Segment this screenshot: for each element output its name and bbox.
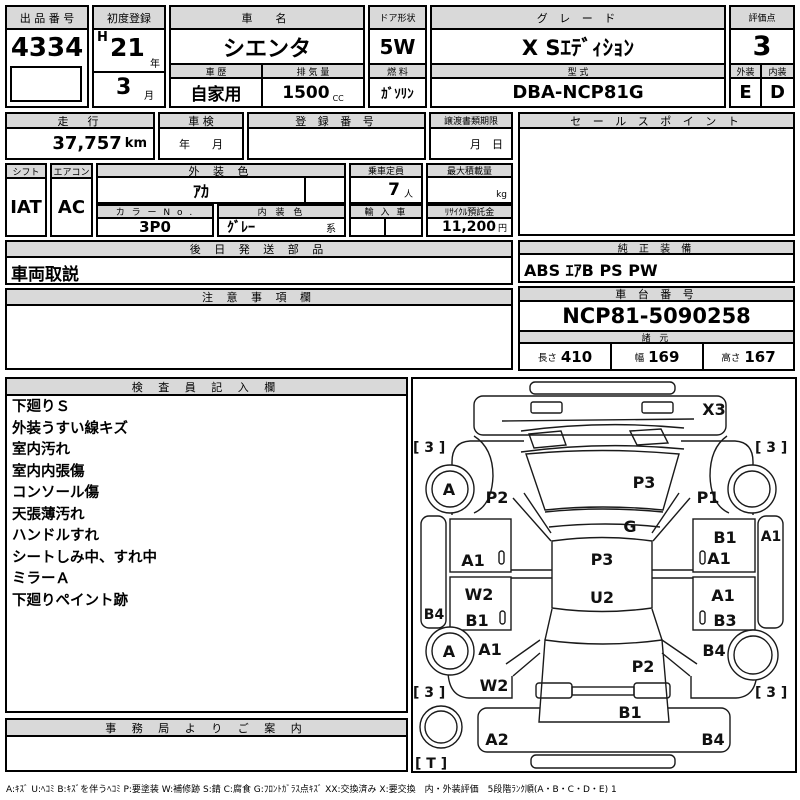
shaken-box: 車 検 年 月 [158,112,244,160]
inspector-line: シートしみ中、すれ中 [12,548,401,570]
car-name-label: 車 名 [171,7,363,30]
sales-point-label: セ ー ル ス ポ イ ン ト [520,114,793,129]
ext-color-box: 外 装 色 ｱｶ [96,163,346,204]
capacity-unit: 人 [404,187,413,202]
grade-label: グ レ ー ド [432,7,724,30]
oem-value: ABS ｴｱB PS PW [520,255,793,283]
mileage-unit: km [125,136,147,151]
tire-depth-rear-right: [ 3 ] [755,685,787,701]
import-cell-1 [351,219,386,235]
model-label: 型 式 [432,65,724,79]
int-color-box: 内 装 色 ｸﾞﾚｰ 系 [217,204,346,237]
color-no-box: カ ラ ー N o . 3P0 [96,204,214,237]
mileage-value: 37,757 km [7,129,153,158]
wheel-front-right-icon [728,465,776,513]
spare-tire-label: [ T ] [415,756,447,771]
damage-label-roof: P3 [591,550,614,569]
damage-label-windshield: P3 [633,473,656,492]
chassis-label: 車 台 番 号 [520,288,793,302]
damage-label-glass: G [623,517,636,536]
score-value: 3 [731,30,793,65]
dims-label: 諸 元 [520,332,793,344]
damage-label-right-sill: A1 [761,529,782,545]
max-load-label: 最大積載量 [428,165,511,178]
first-reg-year: 21 [110,33,145,62]
damage-label-right-quarter: B4 [702,641,725,660]
tire-depth-front-right: [ 3 ] [755,440,787,456]
auction-no-value: 4334 [7,30,87,66]
caution-box: 注 意 事 項 欄 [5,288,513,370]
later-parts-value: 車両取説 [7,258,511,287]
oem-box: 純 正 装 備 ABS ｴｱB PS PW [518,240,795,283]
int-color-value: ｸﾞﾚｰ 系 [219,219,344,235]
auction-no-empty-cell [10,66,82,102]
damage-label-front-right-fender: P1 [697,488,720,507]
car-name-box: 車 名 シエンタ 車 歴 自家用 排 気 量 1500 CC [169,5,365,108]
inspector-line: 下廻りペイント跡 [12,591,401,613]
damage-label-front-left-fender: P2 [486,488,509,507]
car-outline [420,382,783,768]
deadline-box: 譲渡書類期限 月 日 [429,112,513,160]
damage-label-right-rear-door-2: B3 [713,611,736,630]
displacement-value: 1500 CC [263,79,363,106]
damage-label-wheel-front-left: A [443,480,456,499]
score-box: 評価点 3 外装 E 内装 D [729,5,795,108]
auction-sheet: 出 品 番 号 4334 初度登録 H 21 年 3 月 車 名 シエンタ 車 … [0,0,800,800]
interior-grade: D [762,79,793,106]
deadline-label: 譲渡書類期限 [431,114,511,129]
door-value: 5W [370,30,425,65]
aircon-label: エアコン [52,165,91,179]
ext-color-value: ｱｶ [98,178,306,202]
sales-point-box: セ ー ル ス ポ イ ン ト [518,112,795,236]
later-parts-box: 後 日 発 送 部 品 車両取説 [5,240,513,285]
fuel-label: 燃 料 [370,65,425,79]
first-reg-month: 3 [116,75,131,100]
aircon-value: AC [52,179,91,235]
max-load-box: 最大積載量 kg [426,163,513,204]
front-top-strip [530,382,675,394]
first-reg-box: 初度登録 H 21 年 3 月 [92,5,166,108]
office-box: 事 務 局 よ り ご 案 内 [5,718,408,772]
car-damage-diagram: X3 P2 P1 P3 G P3 U2 A1 W2 B1 B4 A1 W2 B1… [413,379,795,771]
max-load-unit: kg [428,178,511,202]
door-box: ドア形状 5W 燃 料 ｶﾞｿﾘﾝ [368,5,427,108]
inspector-line: 下廻りＳ [12,397,401,419]
caution-label: 注 意 事 項 欄 [7,290,511,306]
spare-tire-icon [420,706,462,748]
chassis-box: 車 台 番 号 NCP81-5090258 諸 元 長さ 410 幅 169 高… [518,286,795,371]
damage-label-left-front-door: A1 [461,551,485,570]
interior-label: 内装 [762,65,793,79]
inspector-line: コンソール傷 [12,483,401,505]
shaken-value: 年 月 [160,129,242,158]
damage-label-left-rear-door-1: W2 [465,585,494,604]
car-name-value: シエンタ [171,30,363,65]
regno-box: 登 録 番 号 [247,112,426,160]
import-box: 輸 入 車 [349,204,423,237]
fuel-value: ｶﾞｿﾘﾝ [370,79,425,106]
inspector-line: ハンドルすれ [12,526,401,548]
damage-label-left-sill: B4 [424,607,445,623]
damage-diagram-box: X3 P2 P1 P3 G P3 U2 A1 W2 B1 B4 A1 W2 B1… [411,377,797,773]
damage-label-left-quarter-2: W2 [480,676,509,695]
damage-label-right-rear-door-1: A1 [711,586,735,605]
recycle-unit: 円 [498,221,507,235]
exterior-grade: E [731,79,760,106]
inspector-line: 室内内張傷 [12,462,401,484]
dims-width: 幅 169 [612,344,704,369]
first-reg-era: H [97,30,108,45]
damage-label-rear-bumper-left: A2 [485,730,509,749]
deadline-value: 月 日 [431,129,511,158]
score-label: 評価点 [731,7,793,30]
capacity-box: 乗車定員 7 人 [349,163,423,204]
inspector-line: 室内汚れ [12,440,401,462]
import-label: 輸 入 車 [351,206,421,219]
tire-depth-front-left: [ 3 ] [413,440,445,456]
damage-label-rear-gate-lower: B1 [618,703,641,722]
damage-label-right-front-door-2: A1 [707,549,731,568]
shift-box: シフト IAT [5,163,47,237]
grade-box: グ レ ー ド X Sｴﾃﾞｨｼｮﾝ 型 式 DBA-NCP81G [430,5,726,108]
footer-legend: A:ｷｽﾞ U:ﾍｺﾐ B:ｷｽﾞを伴うﾍｺﾐ P:要塗装 W:補修跡 S:錆 … [6,782,796,798]
wheel-rear-right-icon [728,630,778,680]
inspector-line: ミラーＡ [12,569,401,591]
shift-value: IAT [7,179,45,235]
inspector-line: 天張薄汚れ [12,505,401,527]
auction-no-box: 出 品 番 号 4334 [5,5,89,108]
windshield-outline [526,451,679,511]
damage-label-wheel-rear-left: A [443,642,456,661]
damage-label-front-bumper: X3 [702,400,725,419]
int-color-suffix: 系 [326,220,336,235]
color-no-value: 3P0 [98,219,212,235]
door-label: ドア形状 [370,7,425,30]
rear-bottom-strip [531,755,675,768]
damage-label-left-rear-door-2: B1 [465,611,488,630]
displacement-label: 排 気 量 [263,65,363,79]
displacement-unit: CC [333,94,344,106]
history-label: 車 歴 [171,65,261,79]
damage-label-left-quarter-1: A1 [478,640,502,659]
exterior-label: 外装 [731,65,760,79]
recycle-box: ﾘｻｲｸﾙ預託金 11,200 円 [426,204,513,237]
dims-length: 長さ 410 [520,344,612,369]
oem-label: 純 正 装 備 [520,242,793,255]
damage-label-right-front-door-1: B1 [713,528,736,547]
recycle-label: ﾘｻｲｸﾙ預託金 [428,206,511,219]
regno-value [249,129,424,158]
recycle-value: 11,200 円 [428,219,511,235]
first-reg-label: 初度登録 [94,7,164,30]
first-reg-month-unit: 月 [144,87,154,102]
later-parts-label: 後 日 発 送 部 品 [7,242,511,258]
capacity-value: 7 人 [351,178,421,202]
ext-color-label: 外 装 色 [98,165,344,178]
damage-label-rear-gate: P2 [632,657,655,676]
tire-depth-rear-left: [ 3 ] [413,685,445,701]
aircon-box: エアコン AC [50,163,93,237]
import-cell-2 [386,219,421,235]
front-bumper-outline [474,396,726,435]
grade-value: X Sｴﾃﾞｨｼｮﾝ [432,30,724,65]
first-reg-year-unit: 年 [150,55,160,70]
regno-label: 登 録 番 号 [249,114,424,129]
damage-label-roof-rear: U2 [590,588,614,607]
mileage-box: 走 行 37,757 km [5,112,155,160]
dims-height: 高さ 167 [704,344,793,369]
inspector-label: 検 査 員 記 入 欄 [7,379,406,396]
shaken-label: 車 検 [160,114,242,129]
model-value: DBA-NCP81G [432,79,724,106]
chassis-value: NCP81-5090258 [520,302,793,332]
auction-no-label: 出 品 番 号 [7,7,87,30]
damage-label-rear-bumper-right: B4 [701,730,724,749]
inspector-lines: 下廻りＳ 外装うすい線キズ 室内汚れ 室内内張傷 コンソール傷 天張薄汚れ ハン… [7,396,406,613]
mileage-label: 走 行 [7,114,153,129]
shift-label: シフト [7,165,45,179]
ext-color-empty-cell [306,178,344,202]
office-label: 事 務 局 よ り ご 案 内 [7,720,406,737]
rear-gate-outline [539,640,669,722]
capacity-label: 乗車定員 [351,165,421,178]
history-value: 自家用 [171,79,261,106]
inspector-box: 検 査 員 記 入 欄 下廻りＳ 外装うすい線キズ 室内汚れ 室内内張傷 コンソ… [5,377,408,713]
inspector-line: 外装うすい線キズ [12,419,401,441]
